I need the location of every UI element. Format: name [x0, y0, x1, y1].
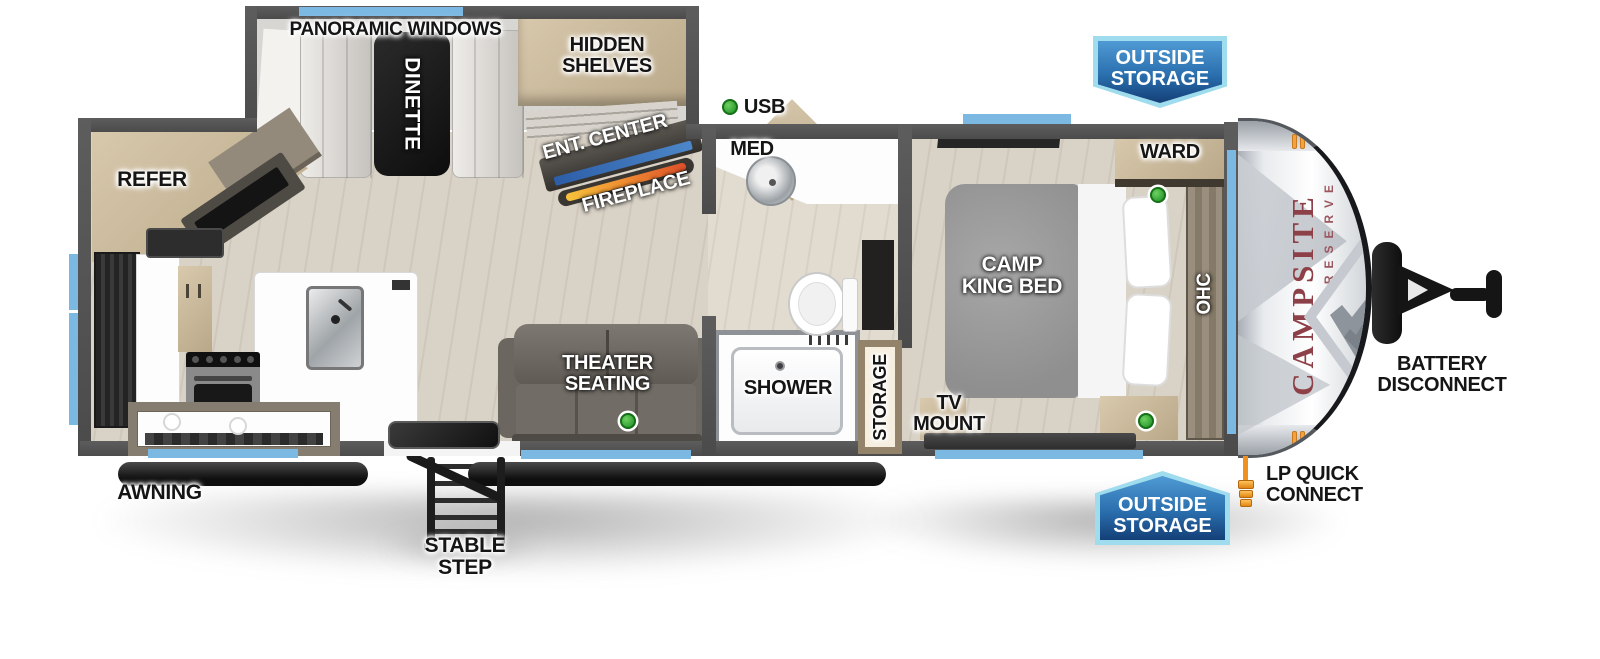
panoramic-windows-label: PANORAMIC WINDOWS	[288, 20, 503, 40]
outside-storage-label: OUTSIDE STORAGE	[1095, 495, 1230, 537]
outside-storage-label: OUTSIDE STORAGE	[1093, 48, 1227, 90]
theater-line1: THEATER	[562, 353, 653, 374]
awning-label: AWNING	[112, 480, 207, 506]
top-window-bedroom	[963, 114, 1071, 124]
bed-line2: KING BED	[962, 276, 1062, 298]
lp-connector-icon	[1238, 480, 1254, 489]
slide-wall-left	[245, 6, 257, 132]
ohc-label: OHC	[1195, 273, 1215, 314]
faucet-icon	[331, 315, 340, 324]
usb-indicator-icon	[620, 413, 636, 429]
faucet-spout-icon	[338, 298, 353, 311]
hidden-shelves-line2: SHELVES	[562, 56, 652, 77]
outside-griddle-table	[128, 402, 340, 456]
front-wall-trim	[1227, 150, 1236, 434]
battery-disconnect-label: BATTERY DISCONNECT	[1366, 352, 1518, 398]
battery-line2: DISCONNECT	[1377, 375, 1506, 396]
shower-label: SHOWER	[734, 376, 842, 400]
dinette-label: DINETTE	[401, 57, 423, 150]
ward-text: WARD	[1140, 142, 1200, 163]
wall-top-left	[80, 118, 257, 132]
outside-storage-badge-bottom: OUTSIDE STORAGE	[1095, 471, 1230, 545]
toilet-tank	[842, 278, 858, 332]
pillow-icon	[1122, 293, 1173, 387]
rear-window	[69, 254, 78, 310]
tv-mount-label: TV MOUNT	[906, 392, 992, 436]
wardrobe-underside	[1115, 179, 1225, 187]
clearance-light-icon	[1292, 134, 1297, 149]
bath-sink	[746, 156, 796, 206]
usb-indicator-icon	[722, 99, 738, 115]
burner-knob-icon	[247, 356, 254, 363]
shower-towel-bar-icon	[809, 335, 853, 345]
counter-appliance	[392, 280, 410, 290]
ward-label: WARD	[1128, 140, 1212, 164]
griddle-item-icon	[229, 417, 247, 435]
burner-knob-icon	[206, 356, 213, 363]
hidden-shelves-line1: HIDDEN	[570, 35, 645, 56]
theater-line2: SEATING	[565, 374, 650, 395]
dinette-table: DINETTE	[374, 32, 450, 176]
wall-top-right	[686, 124, 1238, 139]
microwave	[146, 228, 224, 258]
bath-tall-cabinet	[862, 240, 894, 330]
kitchen-cabinet	[178, 266, 212, 352]
outside-storage-badge-top: OUTSIDE STORAGE	[1093, 36, 1227, 108]
griddle-item-icon	[163, 413, 181, 431]
step-rung	[432, 515, 500, 520]
awning-text: AWNING	[117, 482, 202, 504]
toilet	[788, 272, 846, 336]
outside-storage-line2: STORAGE	[1113, 516, 1212, 537]
lp-line-icon	[1243, 456, 1248, 482]
rear-window	[69, 313, 78, 425]
pillow-icon	[1122, 195, 1173, 289]
rv-floorplan-canvas: DINETTE PANORAMIC WINDOWS HIDDEN SHELVES…	[0, 0, 1600, 659]
med-text: MED	[730, 139, 774, 160]
dinette-bench-right	[452, 30, 524, 178]
entry-step-landing	[388, 421, 500, 449]
cabinet-handle-icon	[198, 284, 201, 298]
bottom-window-kitchen	[148, 449, 298, 458]
usb-legend-text: USB	[744, 97, 785, 118]
mountain-graphic-icon	[1294, 217, 1372, 417]
refer-label: REFER	[106, 166, 198, 194]
kitchen-sink	[306, 286, 364, 370]
tongue-jack-coupler	[1372, 242, 1402, 344]
shower-text: SHOWER	[744, 378, 832, 399]
clearance-light-icon	[1292, 431, 1297, 446]
bathroom-bedroom-wall	[898, 124, 912, 348]
lp-connector-icon	[1240, 499, 1252, 507]
bed-sheet	[1078, 184, 1126, 398]
outside-storage-line1: OUTSIDE	[1118, 495, 1207, 516]
toilet-seat	[798, 282, 836, 326]
bathroom-wall-left-upper	[702, 124, 716, 214]
camp-king-bed-label: CAMP KING BED	[952, 250, 1072, 302]
hidden-shelves-label: HIDDEN SHELVES	[528, 30, 686, 82]
lp-quick-connect-label: LP QUICK CONNECT	[1266, 462, 1366, 508]
storage-label: STORAGE	[871, 354, 890, 441]
refer-text: REFER	[117, 169, 187, 191]
bottom-window-theater	[521, 450, 691, 459]
usb-indicator-icon	[1138, 413, 1154, 429]
step-rung	[432, 498, 500, 503]
tv-line1: TV	[937, 393, 962, 414]
bed-line1: CAMP	[982, 254, 1043, 276]
griddle-surface	[145, 433, 323, 445]
stable-step-label: STABLE STEP	[400, 544, 530, 570]
lp-line2: CONNECT	[1266, 485, 1363, 506]
hitch-handle	[1486, 270, 1502, 318]
usb-indicator-icon	[1150, 187, 1166, 203]
panoramic-windows-text: PANORAMIC WINDOWS	[290, 20, 502, 40]
panoramic-window-strip	[299, 7, 463, 16]
med-label: MED	[726, 138, 778, 160]
battery-line1: BATTERY	[1397, 354, 1487, 375]
clearance-light-icon	[1300, 134, 1305, 149]
sink-drain-icon	[769, 179, 776, 186]
outside-storage-line1: OUTSIDE	[1116, 48, 1205, 69]
awning-tube	[468, 462, 886, 486]
burner-knob-icon	[192, 356, 199, 363]
slide-wall-right	[686, 6, 699, 136]
clearance-light-icon	[1300, 431, 1305, 446]
usb-legend-label: USB	[742, 96, 787, 118]
wall-rear	[78, 118, 91, 456]
outside-storage-line2: STORAGE	[1111, 69, 1210, 90]
lp-connector-icon	[1239, 490, 1253, 498]
oven-handle	[194, 376, 252, 381]
hitch-arm	[1450, 288, 1490, 301]
theater-seating-label: THEATER SEATING	[550, 352, 665, 396]
front-cap: CAMPSITE RESERVE	[1238, 118, 1372, 458]
storage-compartment: STORAGE	[858, 340, 902, 454]
lp-line1: LP QUICK	[1266, 464, 1359, 485]
overhead-cabinet: OHC	[1186, 148, 1224, 440]
burner-knob-icon	[234, 356, 241, 363]
stable-step-text: STABLE STEP	[400, 535, 530, 579]
burner-knob-icon	[220, 356, 227, 363]
bottom-window-bedroom	[935, 450, 1143, 459]
shower-drain-icon	[775, 361, 785, 371]
bathroom-wall-left-lower	[702, 316, 716, 455]
tv-line2: MOUNT	[913, 414, 985, 435]
cabinet-handle-icon	[186, 284, 189, 298]
